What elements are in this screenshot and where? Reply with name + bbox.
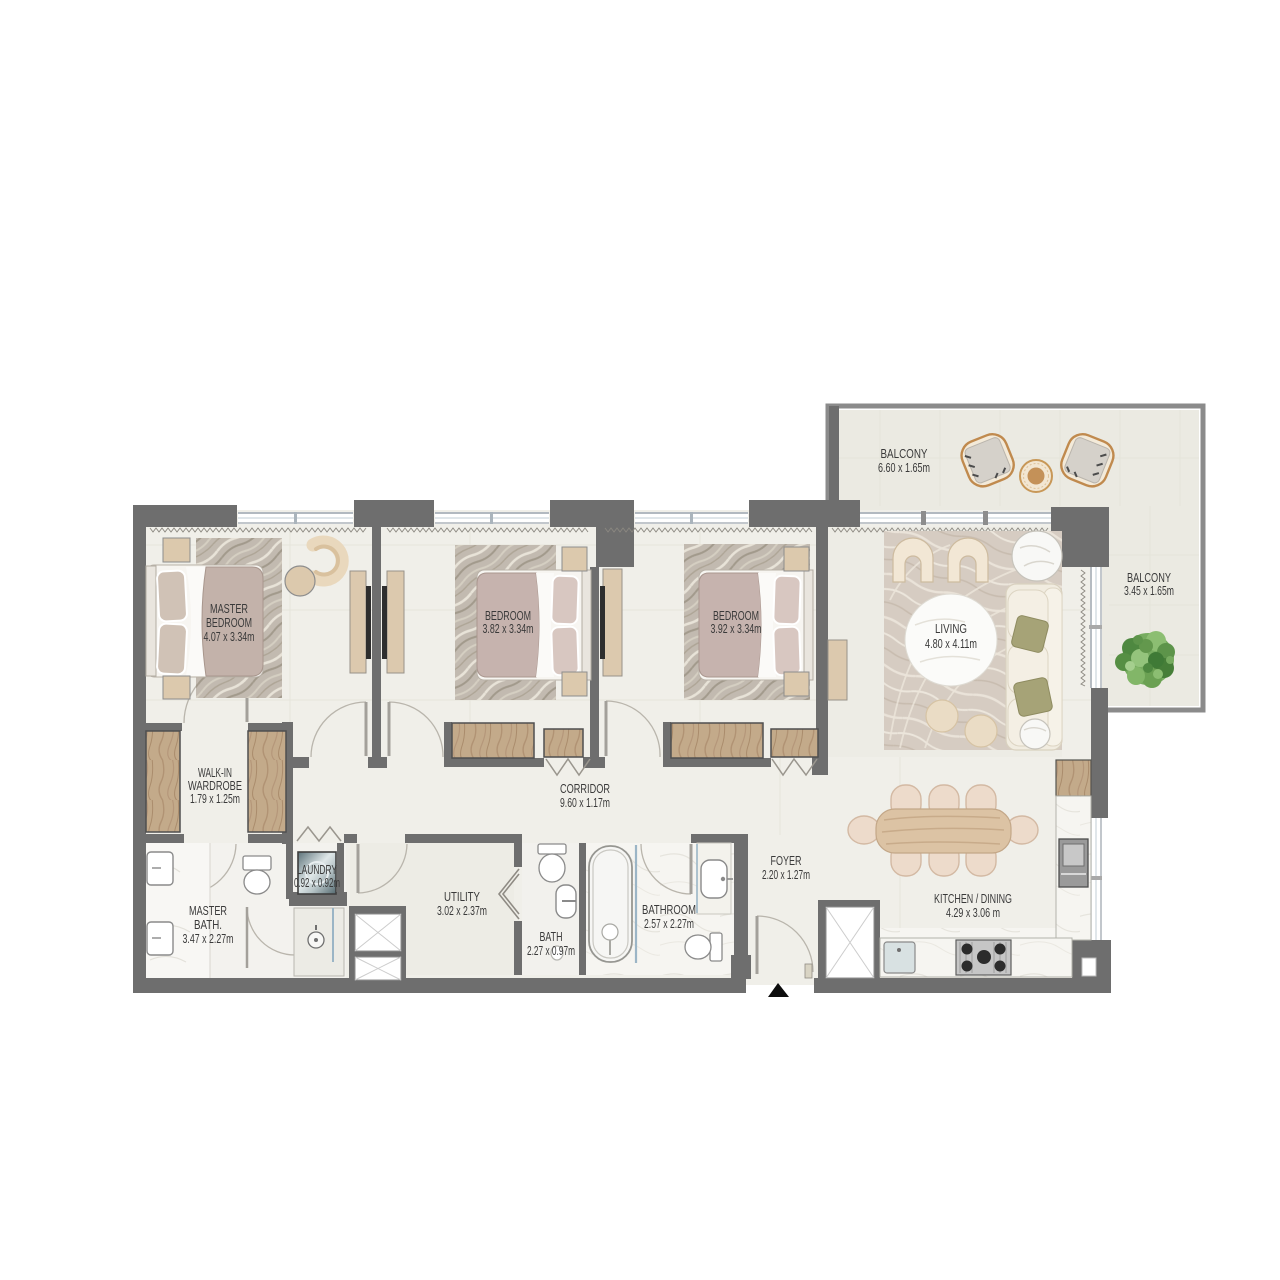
svg-text:MASTER: MASTER — [210, 602, 248, 616]
svg-text:9.60 x 1.17m: 9.60 x 1.17m — [560, 796, 610, 810]
svg-text:6.60 x 1.65m: 6.60 x 1.65m — [878, 461, 930, 475]
svg-text:BATH: BATH — [540, 930, 563, 944]
svg-text:3.82 x 3.34m: 3.82 x 3.34m — [483, 622, 534, 636]
svg-text:BEDROOM: BEDROOM — [713, 609, 759, 623]
svg-text:LAUNDRY: LAUNDRY — [297, 863, 337, 877]
svg-text:3.02 x 2.37m: 3.02 x 2.37m — [437, 904, 487, 918]
svg-text:3.47 x 2.27m: 3.47 x 2.27m — [183, 932, 234, 946]
svg-text:KITCHEN / DINING: KITCHEN / DINING — [934, 892, 1012, 906]
svg-text:3.45 x 1.65m: 3.45 x 1.65m — [1124, 584, 1174, 598]
svg-text:BEDROOM: BEDROOM — [206, 616, 252, 630]
svg-text:2.57 x 2.27m: 2.57 x 2.27m — [644, 917, 694, 931]
svg-text:MASTER: MASTER — [189, 904, 227, 918]
svg-text:2.20 x 1.27m: 2.20 x 1.27m — [762, 868, 810, 882]
svg-text:FOYER: FOYER — [771, 854, 802, 868]
svg-text:0.92 x 0.92m: 0.92 x 0.92m — [294, 876, 340, 890]
svg-text:BEDROOM: BEDROOM — [485, 609, 531, 623]
svg-text:UTILITY: UTILITY — [444, 890, 481, 904]
svg-text:2.27 x 0.97m: 2.27 x 0.97m — [527, 944, 575, 958]
svg-text:4.07 x 3.34m: 4.07 x 3.34m — [204, 630, 255, 644]
svg-text:BALCONY: BALCONY — [1127, 571, 1171, 585]
svg-text:BATHROOM: BATHROOM — [642, 903, 696, 917]
svg-text:4.29 x 3.06 m: 4.29 x 3.06 m — [946, 906, 1000, 920]
svg-text:BALCONY: BALCONY — [881, 447, 929, 461]
svg-text:4.80 x 4.11m: 4.80 x 4.11m — [925, 637, 977, 651]
svg-text:1.79 x 1.25m: 1.79 x 1.25m — [190, 792, 240, 806]
svg-text:BATH.: BATH. — [194, 918, 222, 932]
svg-text:CORRIDOR: CORRIDOR — [560, 782, 610, 796]
svg-text:LIVING: LIVING — [935, 622, 967, 636]
svg-text:WARDROBE: WARDROBE — [188, 779, 242, 793]
svg-text:3.92 x 3.34m: 3.92 x 3.34m — [711, 622, 762, 636]
svg-text:WALK-IN: WALK-IN — [198, 766, 232, 780]
